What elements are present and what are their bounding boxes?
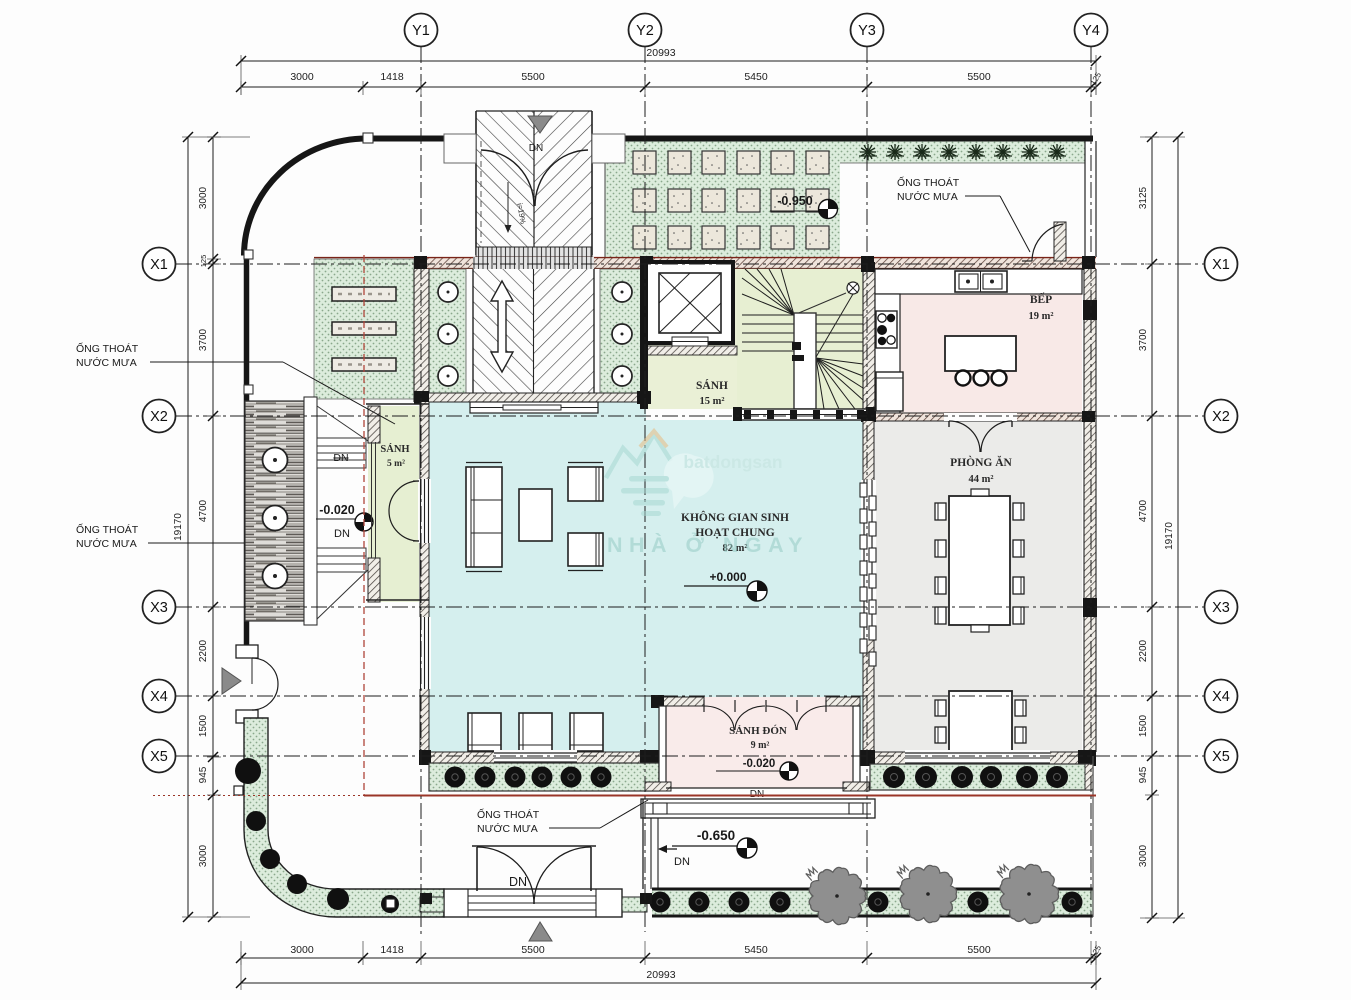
svg-text:3000: 3000 xyxy=(198,186,209,209)
svg-text:X1: X1 xyxy=(1212,257,1230,273)
svg-text:9 m²: 9 m² xyxy=(751,740,770,751)
svg-text:X4: X4 xyxy=(1212,689,1230,705)
svg-text:5450: 5450 xyxy=(744,71,768,83)
svg-text:X1: X1 xyxy=(150,257,168,273)
svg-text:3000: 3000 xyxy=(290,71,314,83)
svg-text:5 m²: 5 m² xyxy=(387,459,405,469)
svg-text:1500: 1500 xyxy=(198,714,209,737)
svg-text:3000: 3000 xyxy=(198,844,209,867)
svg-text:DN: DN xyxy=(509,875,527,889)
svg-text:DN: DN xyxy=(674,856,690,868)
svg-text:KHÔNG GIAN SINH: KHÔNG GIAN SINH xyxy=(681,510,789,524)
svg-text:20993: 20993 xyxy=(646,47,675,59)
svg-text:5500: 5500 xyxy=(521,944,545,956)
svg-text:5500: 5500 xyxy=(967,944,991,956)
svg-text:4700: 4700 xyxy=(198,499,209,522)
svg-text:+0.000: +0.000 xyxy=(709,570,746,584)
svg-text:X3: X3 xyxy=(1212,600,1230,616)
svg-text:PHÒNG ĂN: PHÒNG ĂN xyxy=(950,455,1012,469)
svg-text:X5: X5 xyxy=(1212,749,1230,765)
svg-text:-0.020: -0.020 xyxy=(319,503,354,517)
svg-text:3000: 3000 xyxy=(290,944,314,956)
svg-text:15 m²: 15 m² xyxy=(699,396,724,407)
svg-text:NƯỚC MƯA: NƯỚC MƯA xyxy=(76,537,137,550)
svg-text:ỐNG THOÁT: ỐNG THOÁT xyxy=(76,341,139,355)
svg-text:3700: 3700 xyxy=(198,328,209,351)
svg-text:945: 945 xyxy=(1138,766,1149,783)
svg-text:Y1: Y1 xyxy=(412,23,430,39)
svg-text:3000: 3000 xyxy=(1138,844,1149,867)
svg-text:1418: 1418 xyxy=(380,71,404,83)
svg-text:19170: 19170 xyxy=(1164,522,1175,550)
svg-text:DN: DN xyxy=(529,143,543,154)
svg-text:SẢNH ĐÓN: SẢNH ĐÓN xyxy=(729,725,787,737)
svg-text:-0.020: -0.020 xyxy=(743,758,776,770)
svg-text:X4: X4 xyxy=(150,689,168,705)
svg-text:2200: 2200 xyxy=(1138,639,1149,662)
svg-text:SÁNH: SÁNH xyxy=(380,443,409,455)
svg-text:5500: 5500 xyxy=(521,71,545,83)
svg-text:44 m²: 44 m² xyxy=(968,474,993,485)
svg-text:X2: X2 xyxy=(1212,409,1230,425)
svg-text:batdongsan: batdongsan xyxy=(683,452,782,472)
svg-text:-0.950: -0.950 xyxy=(777,194,812,208)
svg-text:DN: DN xyxy=(334,528,350,540)
svg-text:3125: 3125 xyxy=(1138,186,1149,209)
svg-text:1500: 1500 xyxy=(1138,714,1149,737)
svg-text:3700: 3700 xyxy=(1138,328,1149,351)
svg-text:X2: X2 xyxy=(150,409,168,425)
svg-text:5450: 5450 xyxy=(744,944,768,956)
svg-text:-0.650: -0.650 xyxy=(697,828,735,843)
svg-text:20993: 20993 xyxy=(646,969,675,981)
svg-text:1418: 1418 xyxy=(380,944,404,956)
svg-text:DN: DN xyxy=(333,452,348,464)
svg-text:ỐNG THOÁT: ỐNG THOÁT xyxy=(897,175,960,189)
svg-text:NƯỚC MƯA: NƯỚC MƯA xyxy=(477,822,538,835)
svg-text:NHÀ Ở NGAY: NHÀ Ở NGAY xyxy=(607,532,809,557)
svg-text:Y2: Y2 xyxy=(636,23,654,39)
svg-text:ỐNG THOÁT: ỐNG THOÁT xyxy=(76,522,139,536)
svg-text:19 m²: 19 m² xyxy=(1028,311,1053,322)
svg-text:125: 125 xyxy=(199,255,208,268)
svg-text:945: 945 xyxy=(198,766,209,783)
svg-text:NƯỚC MƯA: NƯỚC MƯA xyxy=(76,356,137,369)
svg-text:2200: 2200 xyxy=(198,639,209,662)
svg-text:X3: X3 xyxy=(150,600,168,616)
svg-text:Y4: Y4 xyxy=(1082,23,1100,39)
svg-text:Y3: Y3 xyxy=(858,23,876,39)
svg-text:SÁNH: SÁNH xyxy=(696,378,728,392)
svg-text:5500: 5500 xyxy=(967,71,991,83)
svg-text:X5: X5 xyxy=(150,749,168,765)
svg-text:NƯỚC MƯA: NƯỚC MƯA xyxy=(897,190,958,203)
svg-text:BẾP: BẾP xyxy=(1030,291,1052,306)
svg-text:4700: 4700 xyxy=(1138,499,1149,522)
svg-text:ỐNG THOÁT: ỐNG THOÁT xyxy=(477,807,540,821)
svg-text:19170: 19170 xyxy=(173,513,184,541)
